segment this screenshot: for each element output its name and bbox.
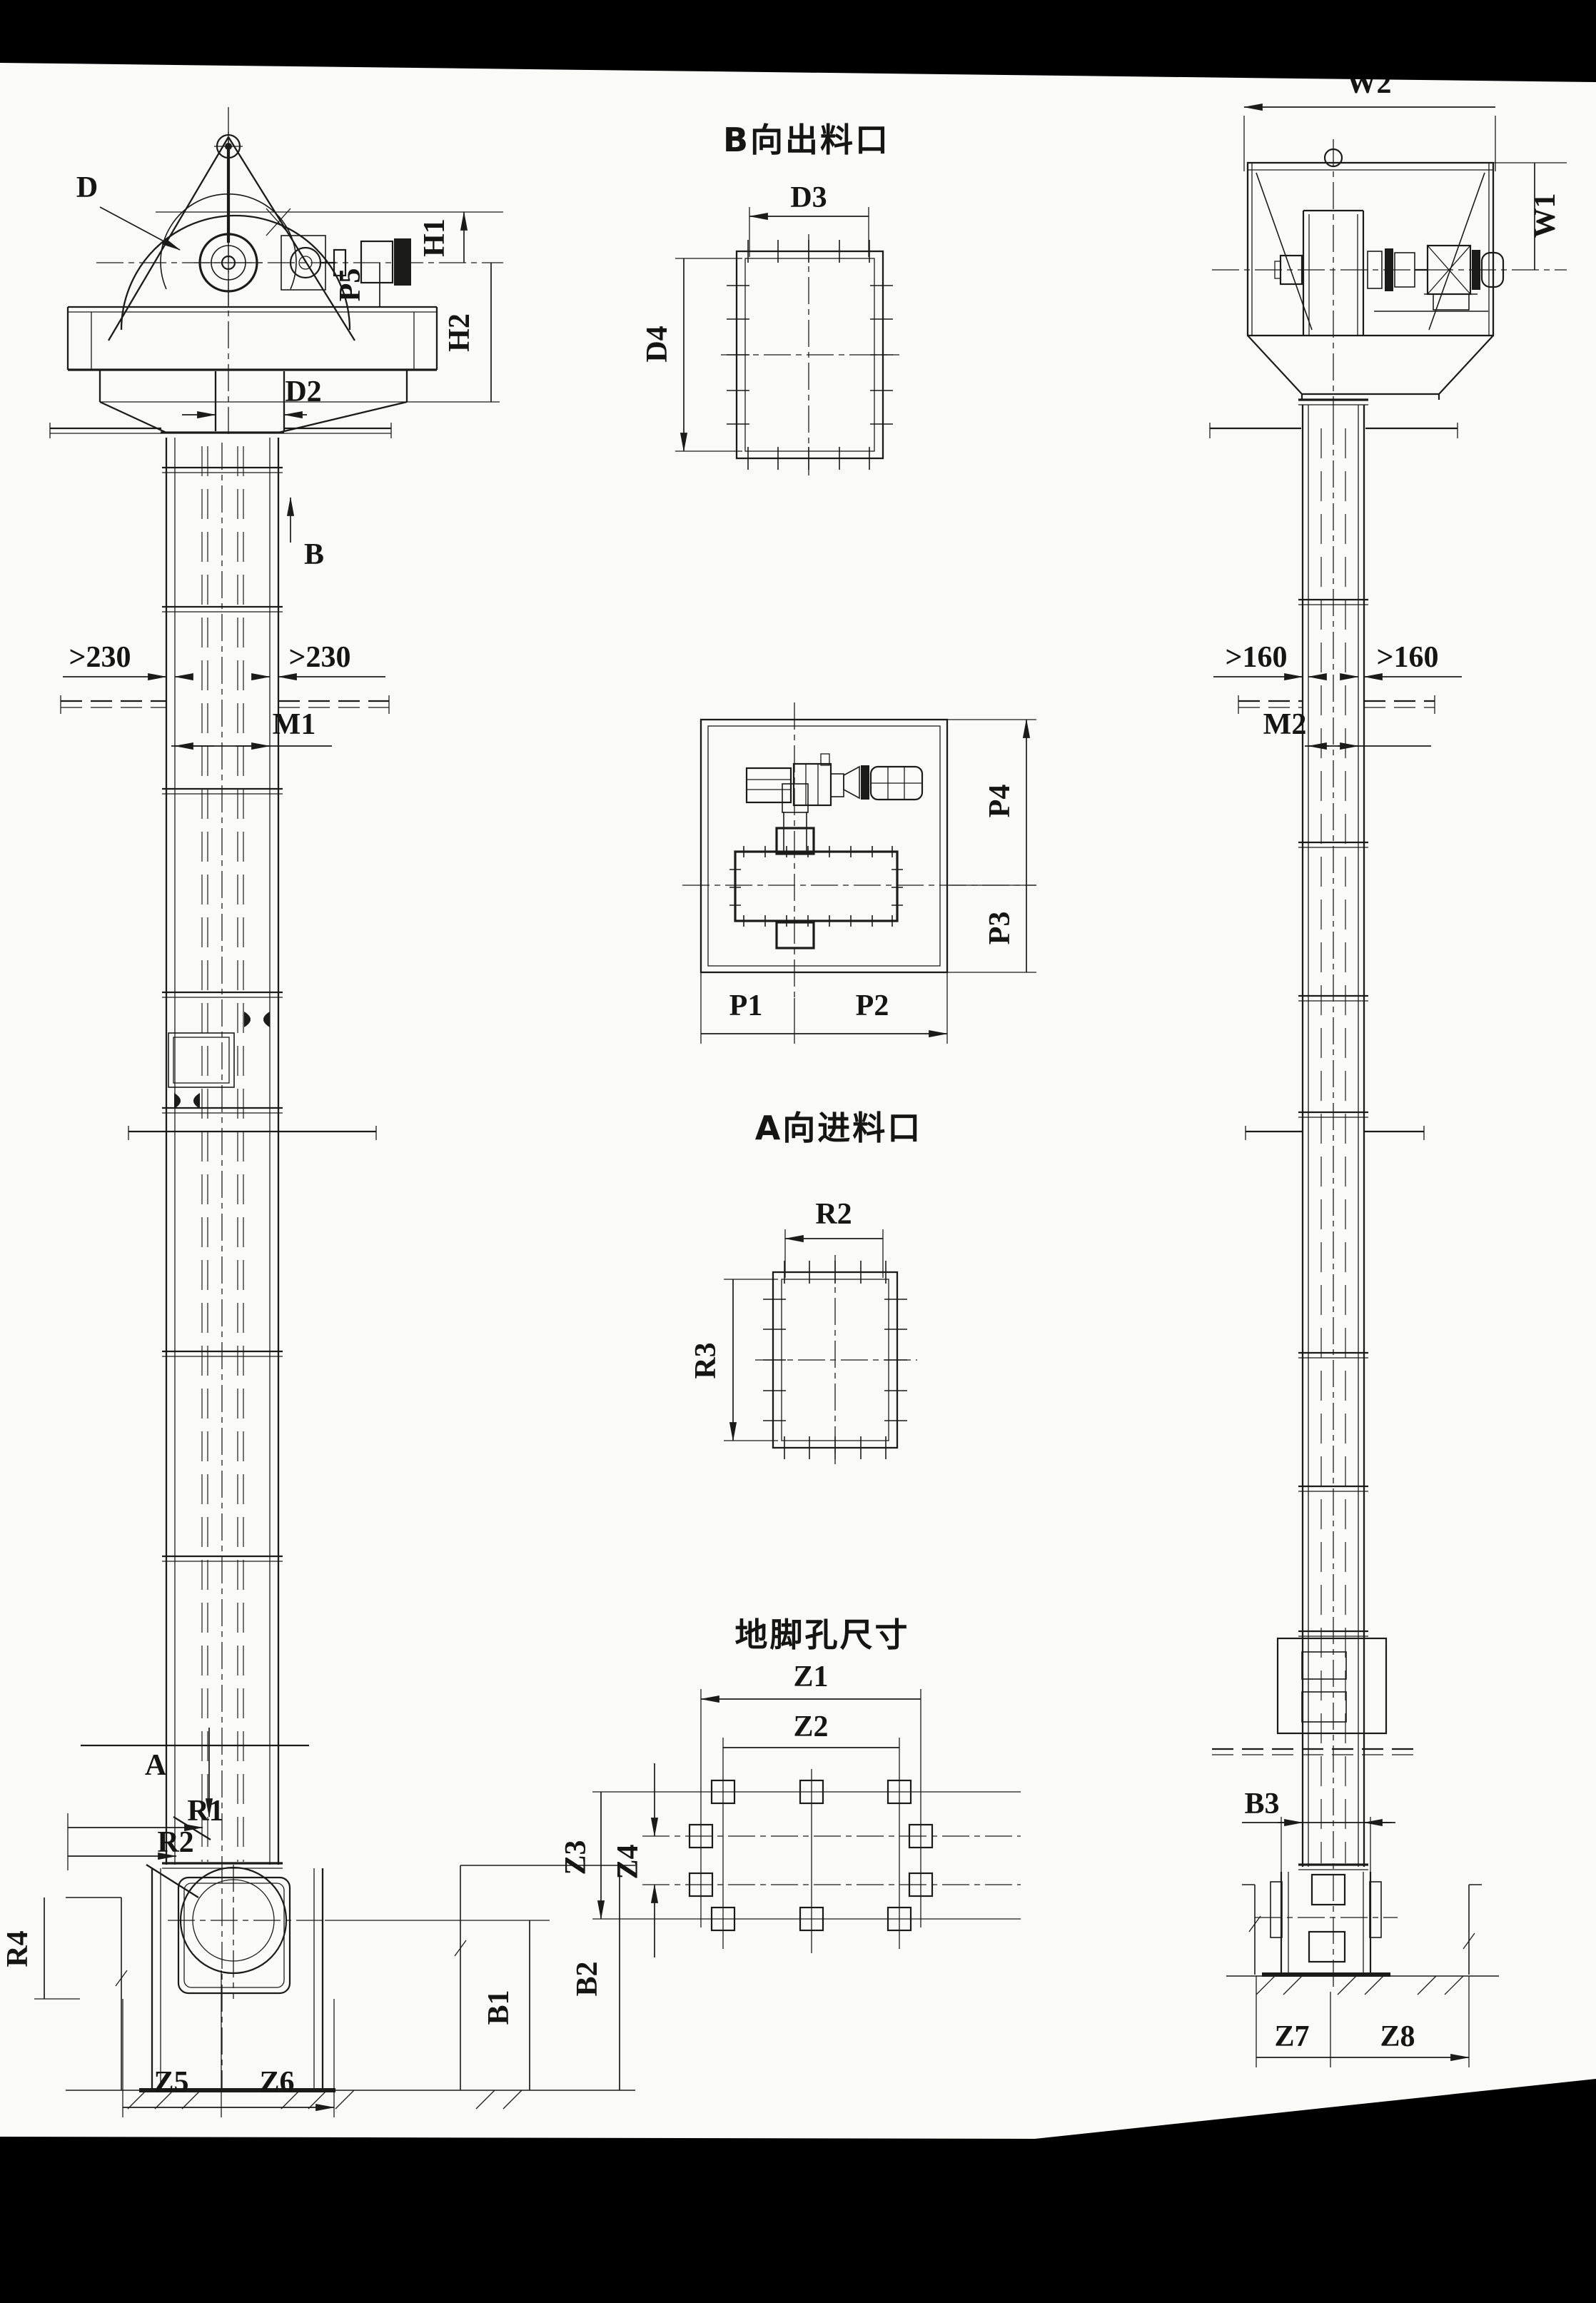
label-anchor-z3: Z3: [560, 1840, 592, 1875]
label-front-z6: Z6: [259, 2066, 294, 2099]
label-side-clearance-left: >160: [1226, 641, 1288, 674]
label-front-p5: P5: [334, 268, 367, 302]
label-front-m1: M1: [273, 708, 316, 741]
label-platform-p4: P4: [984, 785, 1016, 818]
scanned-drawing-page: D H1 P5 H2 D2 B >230 >230 M1 A R1 R2 R4 …: [0, 0, 1596, 2303]
label-front-a: A: [145, 1749, 167, 1782]
label-front-h1: H1: [418, 218, 451, 257]
inlet-view-title: A向进料口: [755, 1109, 923, 1147]
label-front-d: D: [76, 171, 98, 204]
label-front-clearance-right: >230: [289, 641, 351, 674]
label-side-w1: W1: [1529, 193, 1562, 238]
label-platform-p1: P1: [729, 989, 763, 1022]
label-outlet-d4: D4: [641, 326, 674, 362]
label-side-z7: Z7: [1274, 2020, 1309, 2053]
label-side-z8: Z8: [1380, 2020, 1415, 2053]
label-front-b2: B2: [571, 1961, 604, 1996]
label-front-d2: D2: [285, 376, 321, 408]
label-inlet-r3: R3: [690, 1342, 722, 1379]
label-front-b1: B1: [483, 1990, 515, 2025]
label-inlet-r2: R2: [815, 1198, 852, 1231]
label-anchor-z4: Z4: [612, 1844, 645, 1879]
label-front-clearance-left: >230: [69, 641, 131, 674]
label-anchor-z1: Z1: [793, 1661, 828, 1693]
label-platform-p3: P3: [984, 912, 1016, 945]
label-anchor-z2: Z2: [793, 1710, 828, 1743]
label-platform-p2: P2: [856, 989, 889, 1022]
label-front-r4: R4: [1, 1930, 34, 1967]
label-side-b3: B3: [1244, 1788, 1279, 1820]
label-side-m2: M2: [1263, 708, 1307, 741]
label-front-h2: H2: [443, 313, 476, 352]
anchor-view-title: 地脚孔尺寸: [735, 1616, 910, 1654]
label-front-z5: Z5: [153, 2066, 188, 2099]
label-front-r2: R2: [157, 1826, 193, 1859]
outlet-view-title: B向出料口: [723, 121, 890, 159]
bucket-elevator-drawing: D H1 P5 H2 D2 B >230 >230 M1 A R1 R2 R4 …: [0, 0, 1596, 2303]
paper-background: [0, 0, 1596, 2303]
label-front-b: B: [304, 538, 324, 571]
label-front-r1: R1: [187, 1795, 223, 1828]
label-outlet-d3: D3: [790, 181, 827, 214]
label-side-clearance-right: >160: [1377, 641, 1439, 674]
